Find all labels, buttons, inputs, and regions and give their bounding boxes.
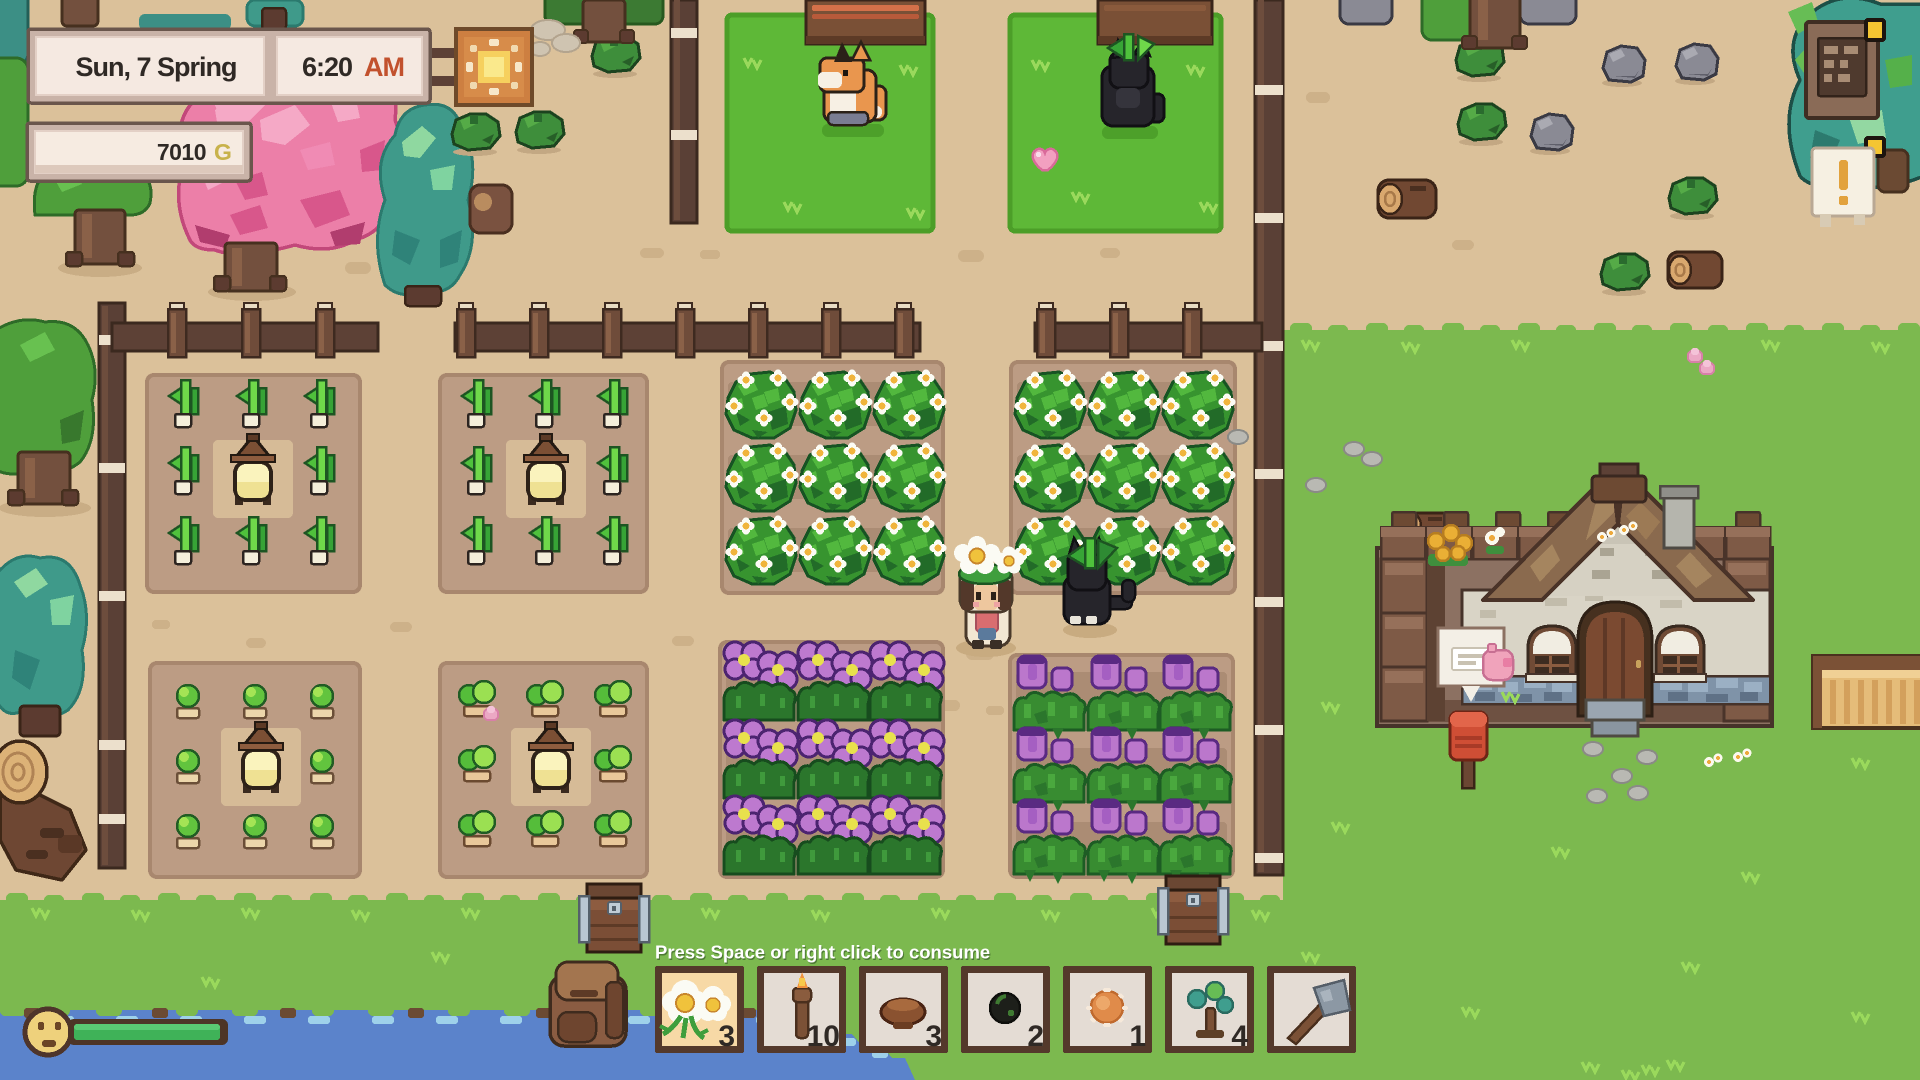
svg-text:Sun, 7 Spring: Sun, 7 Spring	[75, 52, 236, 82]
svg-text:10: 10	[807, 1020, 840, 1053]
svg-text:Press Space or right click to: Press Space or right click to consume	[655, 942, 990, 963]
svg-text:6:20: 6:20	[302, 52, 352, 82]
svg-text:AM: AM	[364, 52, 404, 82]
svg-text:3: 3	[718, 1020, 735, 1053]
svg-text:3: 3	[925, 1020, 942, 1053]
svg-text:2: 2	[1027, 1020, 1044, 1053]
svg-text:G: G	[214, 139, 232, 165]
svg-text:1: 1	[1129, 1020, 1146, 1053]
svg-text:4: 4	[1231, 1020, 1248, 1053]
svg-text:7010: 7010	[157, 139, 206, 165]
